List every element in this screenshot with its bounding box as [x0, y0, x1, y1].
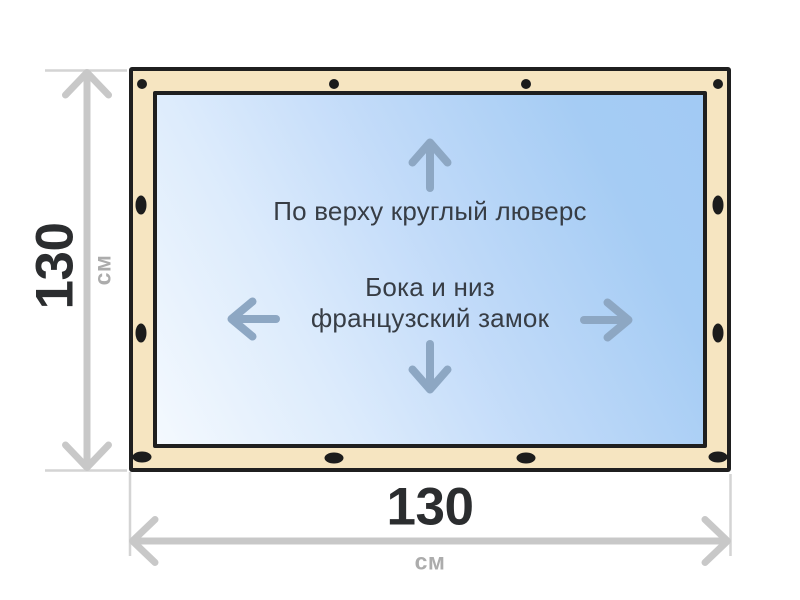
- grommet-dot: [329, 79, 339, 89]
- sides-bottom-label-line2: французский замок: [311, 303, 549, 333]
- banner-panel: По верху круглый люверс Бока и низ франц…: [153, 91, 707, 448]
- height-dimension-value: 130: [25, 223, 86, 310]
- sides-bottom-label: Бока и низ французский замок: [157, 272, 703, 334]
- grommet-dot: [521, 79, 531, 89]
- grommet-dot: [709, 452, 728, 463]
- grommet-dot: [713, 324, 724, 343]
- grommet-dot: [713, 196, 724, 215]
- grommet-dot: [136, 196, 147, 215]
- sides-bottom-label-line1: Бока и низ: [365, 272, 495, 302]
- height-dimension-unit: см: [90, 255, 117, 286]
- grommet-dot: [133, 452, 152, 463]
- awning-dimension-diagram: По верху круглый люверс Бока и низ франц…: [0, 0, 800, 600]
- grommet-dot: [136, 324, 147, 343]
- width-dimension-value: 130: [387, 477, 474, 538]
- grommet-dot: [713, 79, 723, 89]
- top-edge-label: По верху круглый люверс: [157, 196, 703, 227]
- grommet-dot: [137, 79, 147, 89]
- grommet-dot: [325, 453, 344, 464]
- grommet-dot: [517, 453, 536, 464]
- width-dimension-unit: см: [415, 549, 446, 576]
- banner-frame: По верху круглый люверс Бока и низ франц…: [129, 67, 731, 472]
